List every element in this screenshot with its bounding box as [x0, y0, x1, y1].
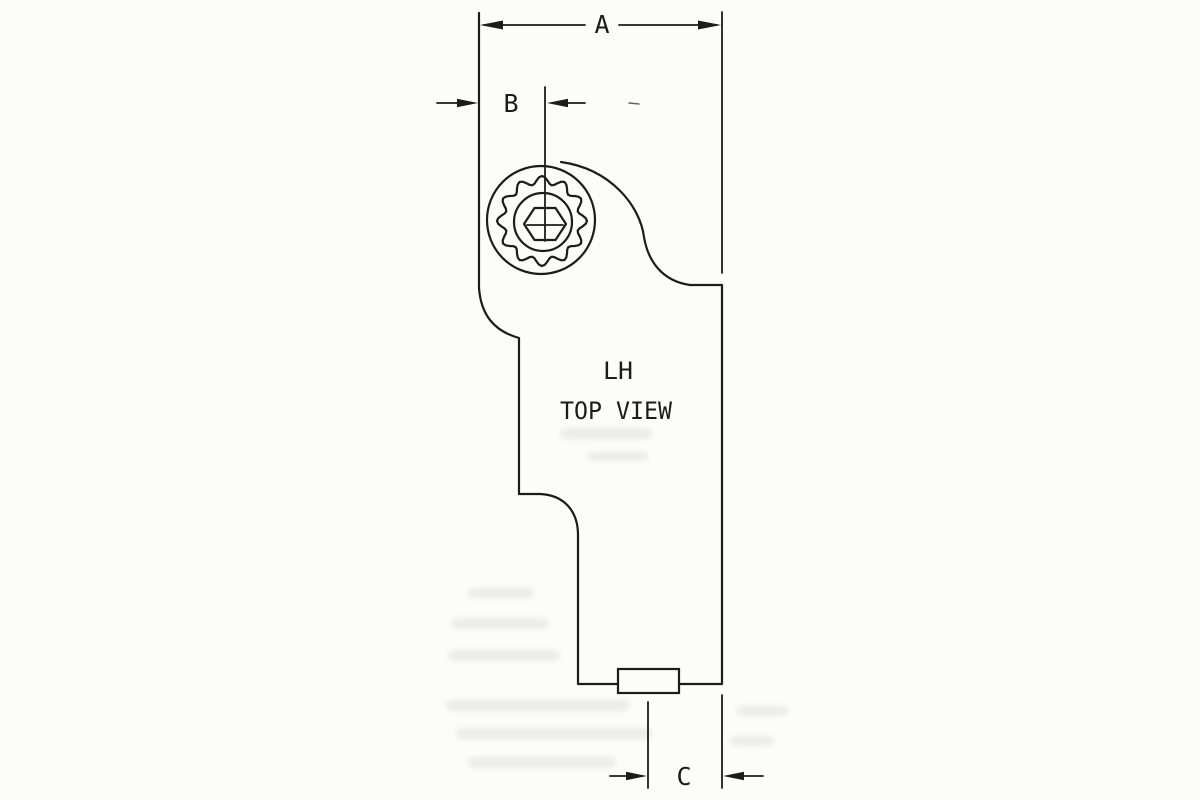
scanned-drawing-sheet: A B C LH TOP VIEW	[0, 0, 1200, 800]
boss-inner-circle	[514, 193, 572, 251]
dim-a-arrow-left	[480, 21, 503, 30]
dim-a-arrow-right	[698, 21, 721, 30]
boss-outer-circle	[487, 166, 595, 274]
dim-c-arrow-left	[626, 772, 647, 780]
dim-b-arrow-right	[547, 99, 568, 107]
dim-b-arrow-left	[457, 99, 478, 107]
dim-c-arrow-right	[723, 772, 744, 780]
dimension-a	[484, 12, 722, 273]
dim-c-label: C	[676, 762, 691, 791]
view-label-top-view: TOP VIEW	[560, 397, 673, 425]
scan-speck	[629, 103, 639, 104]
scan-ghosting-artifacts	[446, 428, 788, 768]
clevis-block	[618, 669, 679, 693]
technical-drawing-canvas: A B C LH TOP VIEW	[0, 0, 1200, 800]
dim-b-label: B	[503, 89, 518, 118]
view-label-lh: LH	[603, 357, 633, 385]
dim-a-label: A	[594, 10, 609, 39]
spline-profile	[497, 176, 587, 266]
